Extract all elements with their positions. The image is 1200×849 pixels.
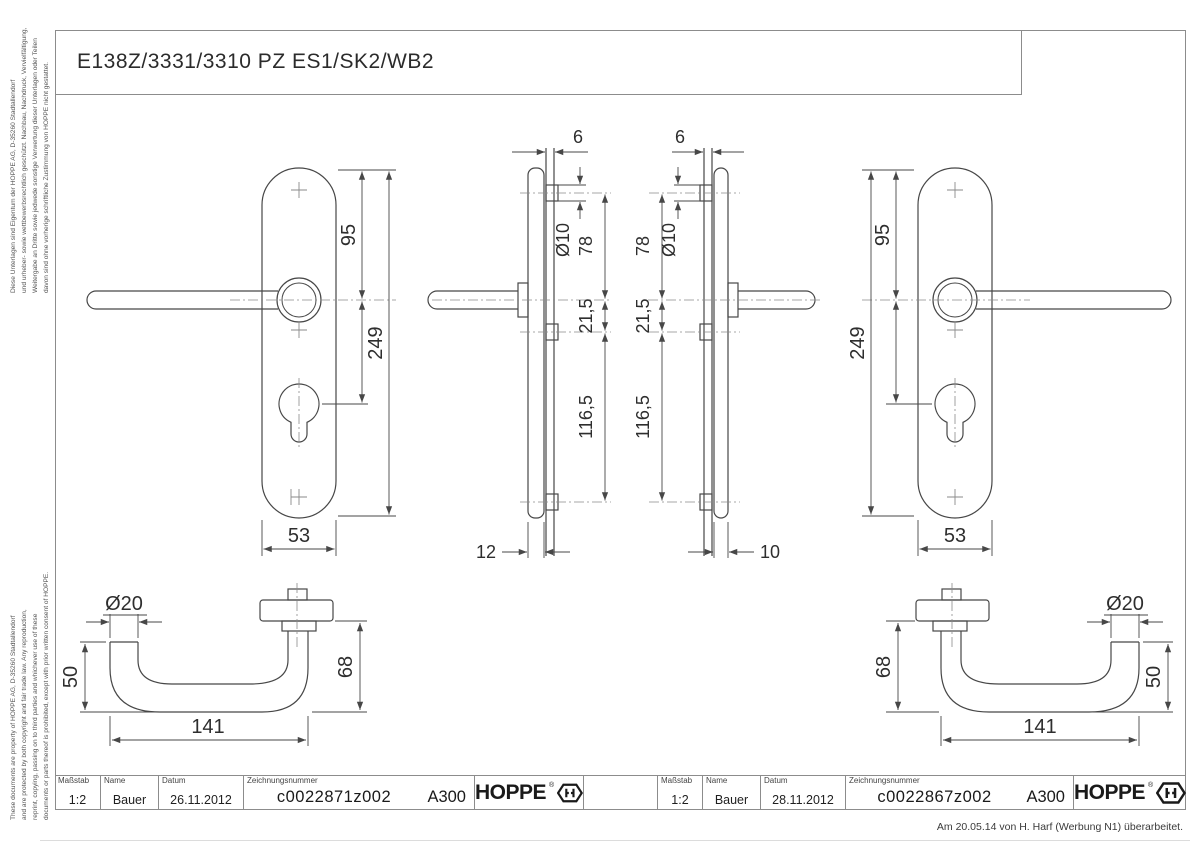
page-title: E138Z/3331/3310 PZ ES1/SK2/WB2 [55,50,434,74]
disclaimer-german-line: Diese Unterlagen sind Eigentum der HOPPE… [8,23,19,293]
format-code: A300 [1026,788,1065,807]
sheet-edge-line [40,840,1190,841]
name-value: Bauer [703,793,760,807]
hoppe-wordmark: HOPPE [475,781,546,805]
hoppe-wordmark: HOPPE [1074,781,1145,805]
hoppe-hexagon-icon [557,781,583,805]
disclaimer-english: These documents are property of HOPPE AG… [8,548,52,820]
title-box: E138Z/3331/3310 PZ ES1/SK2/WB2 [55,30,1022,95]
sheet-border [55,30,1186,810]
disclaimer-german: Diese Unterlagen sind Eigentum der HOPPE… [8,23,52,293]
date-label: Datum [162,776,186,785]
drawing-number-value: c0022867z002 [846,788,1023,807]
left-empty-cell [583,775,657,810]
drawing-number-label: Zeichnungsnummer [849,776,920,785]
date-value: 26.11.2012 [159,793,243,807]
date-label: Datum [764,776,788,785]
drawing-sheet: { "sheet": { "title": "E138Z/3331/3310 P… [0,0,1200,849]
left-scale-cell: Maßstab 1:2 [55,775,100,810]
name-label: Name [706,776,727,785]
right-logo-cell: HOPPE® [1073,775,1186,810]
right-name-cell: Name Bauer [702,775,760,810]
right-date-cell: Datum 28.11.2012 [760,775,845,810]
disclaimer-english-line: These documents are property of HOPPE AG… [8,548,19,820]
registered-mark: ® [1148,782,1153,789]
right-scale-cell: Maßstab 1:2 [657,775,702,810]
disclaimer-german-line: Weitergabe an Dritte sowie jedwede sonst… [30,23,41,293]
disclaimer-english-line: and are protected by both copyright and … [19,548,30,820]
hoppe-logo: HOPPE® [475,775,583,810]
disclaimer-english-line: reprint, copying, passing on to third pa… [30,548,41,820]
name-label: Name [104,776,125,785]
disclaimer-german-line: davon sind ohne vorherige schriftliche Z… [41,23,52,293]
registered-mark: ® [549,782,554,789]
date-value: 28.11.2012 [761,793,845,807]
left-logo-cell: HOPPE® [474,775,583,810]
scale-label: Maßstab [58,776,89,785]
scale-value: 1:2 [55,793,100,807]
drawing-number-value: c0022871z002 [244,788,424,807]
revision-note: Am 20.05.14 von H. Harf (Werbung N1) übe… [937,821,1183,833]
format-code: A300 [427,788,466,807]
scale-value: 1:2 [658,793,702,807]
hoppe-logo: HOPPE® [1074,775,1186,810]
name-value: Bauer [101,793,158,807]
disclaimer-german-line: und urheber- sowie wettbewerbsrechtlich … [19,23,30,293]
left-name-cell: Name Bauer [100,775,158,810]
hoppe-hexagon-icon [1156,781,1186,805]
right-number-cell: Zeichnungsnummer c0022867z002 A300 [845,775,1073,810]
left-date-cell: Datum 26.11.2012 [158,775,243,810]
left-number-cell: Zeichnungsnummer c0022871z002 A300 [243,775,474,810]
scale-label: Maßstab [661,776,692,785]
drawing-number-label: Zeichnungsnummer [247,776,318,785]
disclaimer-english-line: documents or parts thereof is prohibited… [41,548,52,820]
